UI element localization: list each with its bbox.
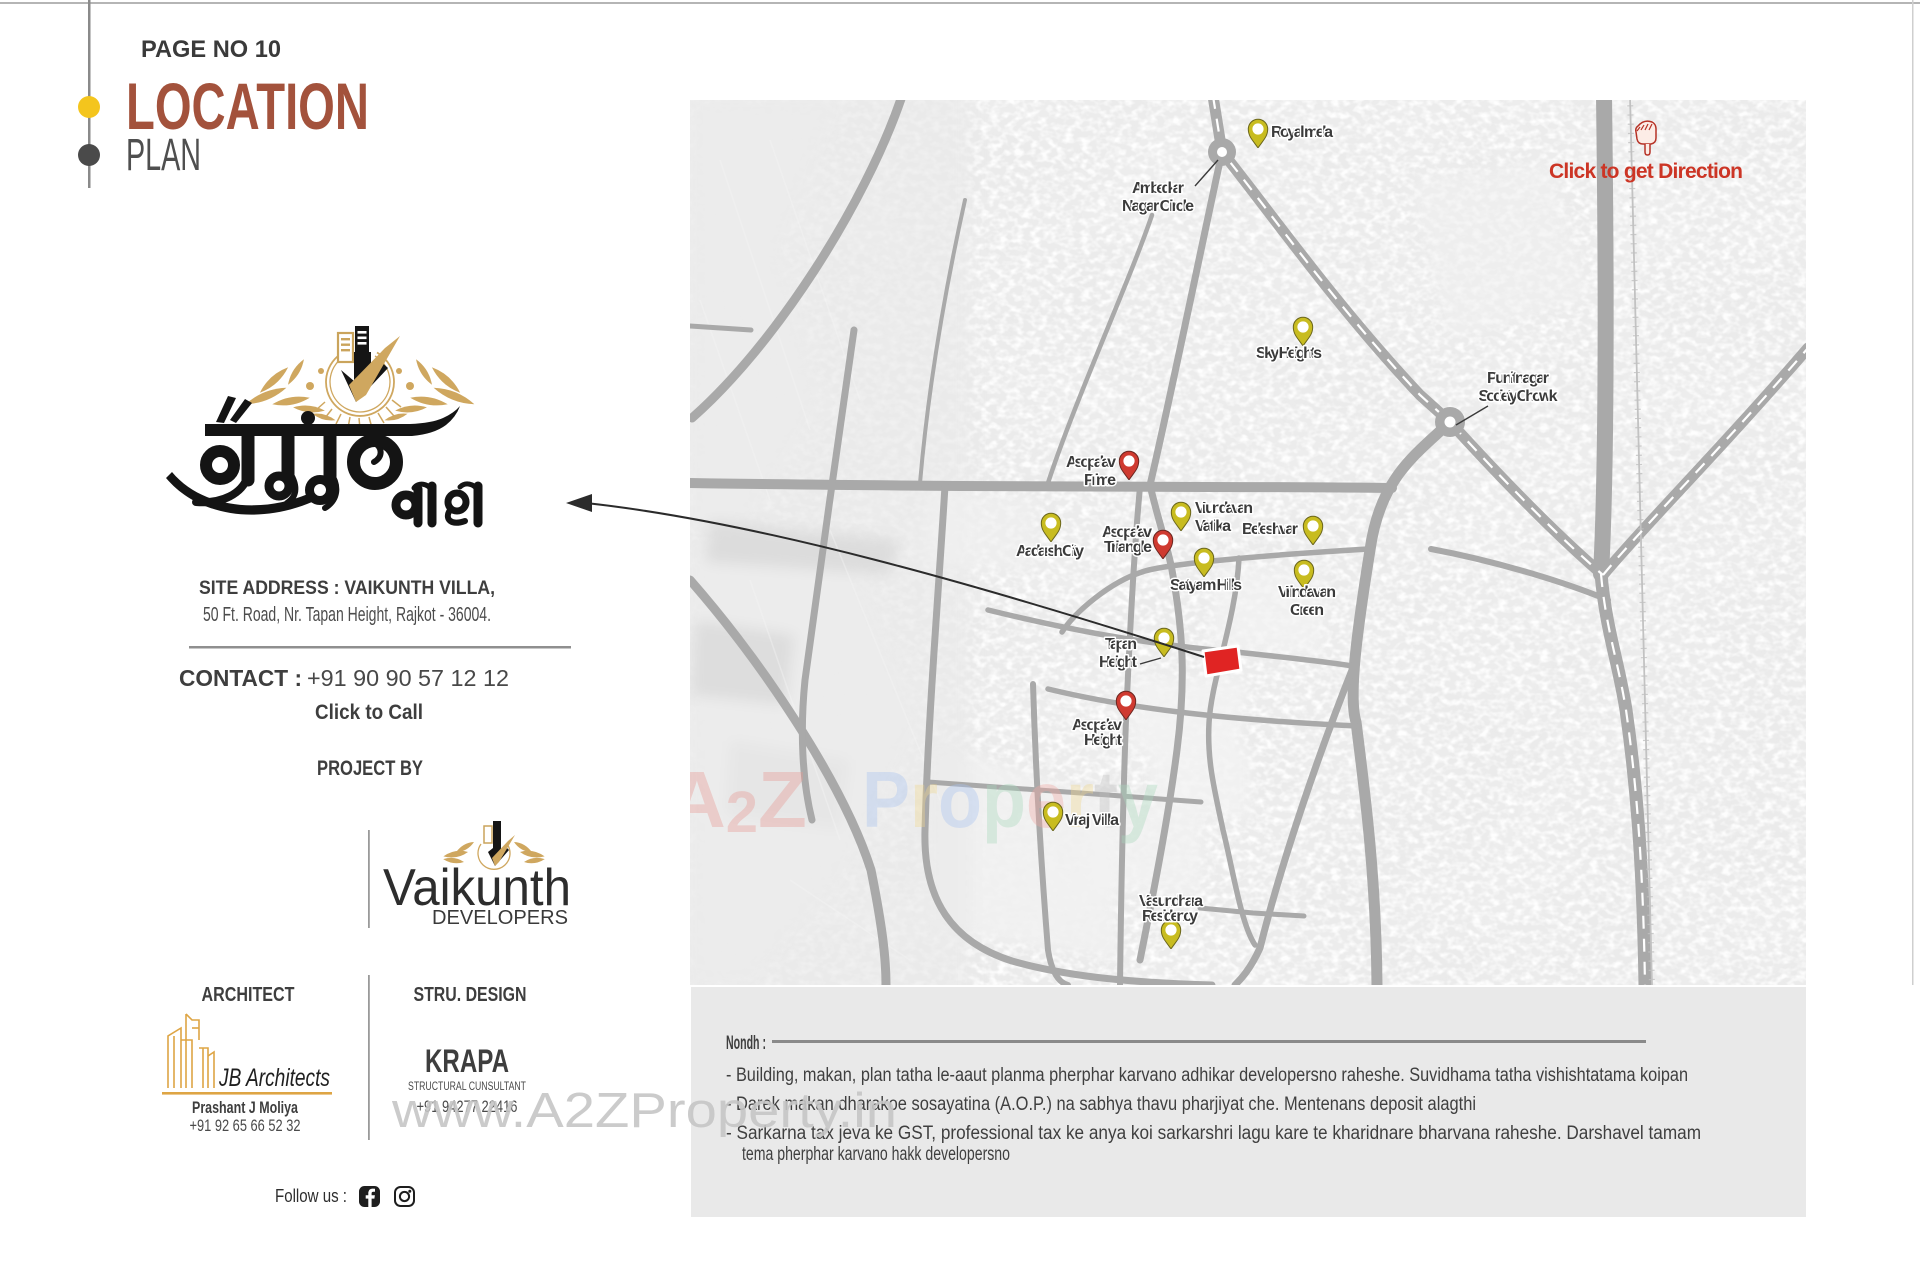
svg-text:Satyam Hills: Satyam Hills xyxy=(1170,577,1242,594)
svg-text:Society Chowk: Society Chowk xyxy=(1479,388,1558,405)
svg-text:STRU. DESIGN: STRU. DESIGN xyxy=(414,984,527,1006)
svg-text:ARCHITECT: ARCHITECT xyxy=(202,984,295,1006)
svg-text:PROJECT BY: PROJECT BY xyxy=(317,757,423,780)
svg-text:Height: Height xyxy=(1099,654,1138,671)
svg-text:Prashant J Moliya: Prashant J Moliya xyxy=(192,1099,299,1117)
svg-text:- Building, makan, plan tatha: - Building, makan, plan tatha le-aaut pl… xyxy=(726,1065,1688,1086)
svg-text:Triangle: Triangle xyxy=(1104,539,1152,556)
svg-text:PLAN: PLAN xyxy=(126,129,201,180)
svg-text:+91 92 65 66 52 32: +91 92 65 66 52 32 xyxy=(190,1117,301,1135)
svg-text:50 Ft. Road, Nr. Tapan Height,: 50 Ft. Road, Nr. Tapan Height, Rajkot - … xyxy=(203,604,491,626)
svg-text:Vatika: Vatika xyxy=(1195,518,1231,535)
svg-text:tema pherphar karvano hakk dev: tema pherphar karvano hakk developersno xyxy=(742,1144,1010,1165)
svg-text:PAGE NO 10: PAGE NO 10 xyxy=(141,36,281,63)
svg-text:Sky Heights: Sky Heights xyxy=(1256,345,1322,362)
svg-text:Beleshvar: Beleshvar xyxy=(1242,521,1298,538)
svg-text:Prime: Prime xyxy=(1084,472,1116,489)
svg-text:+91 90 90 57 12 12: +91 90 90 57 12 12 xyxy=(307,665,509,691)
svg-text:Residency: Residency xyxy=(1142,908,1198,925)
svg-text:Nondh :: Nondh : xyxy=(726,1033,766,1054)
svg-text:Tapan: Tapan xyxy=(1105,636,1137,653)
svg-text:www.A2ZProperty.in: www.A2ZProperty.in xyxy=(391,1084,897,1138)
svg-text:Click to get Direction: Click to get Direction xyxy=(1549,160,1743,183)
svg-text:Ambedkar: Ambedkar xyxy=(1132,180,1184,197)
svg-text:Nagar Circle: Nagar Circle xyxy=(1122,198,1194,215)
svg-text:Vrundavan: Vrundavan xyxy=(1195,500,1253,517)
svg-text:Height: Height xyxy=(1084,732,1123,749)
svg-text:Click to Call: Click to Call xyxy=(315,701,423,724)
svg-text:Aadarsh City: Aadarsh City xyxy=(1016,543,1084,560)
svg-text:CONTACT :: CONTACT : xyxy=(179,665,302,691)
svg-text:JB Architects: JB Architects xyxy=(218,1064,330,1092)
svg-text:Follow us :: Follow us : xyxy=(275,1186,347,1206)
svg-text:Punitnagar: Punitnagar xyxy=(1487,370,1549,387)
svg-text:Green: Green xyxy=(1290,602,1324,619)
svg-text:KRAPA: KRAPA xyxy=(425,1043,509,1079)
svg-text:DEVELOPERS: DEVELOPERS xyxy=(432,907,568,929)
svg-text:Vrindavan: Vrindavan xyxy=(1278,584,1336,601)
svg-text:Royal mela: Royal mela xyxy=(1271,124,1333,141)
svg-text:SITE ADDRESS : VAIKUNTH VILLA,: SITE ADDRESS : VAIKUNTH VILLA, xyxy=(199,577,495,599)
svg-text:Vraj Villa: Vraj Villa xyxy=(1065,812,1119,829)
svg-text:Asopalav: Asopalav xyxy=(1066,454,1116,471)
svg-text:Property: Property xyxy=(862,755,1158,844)
